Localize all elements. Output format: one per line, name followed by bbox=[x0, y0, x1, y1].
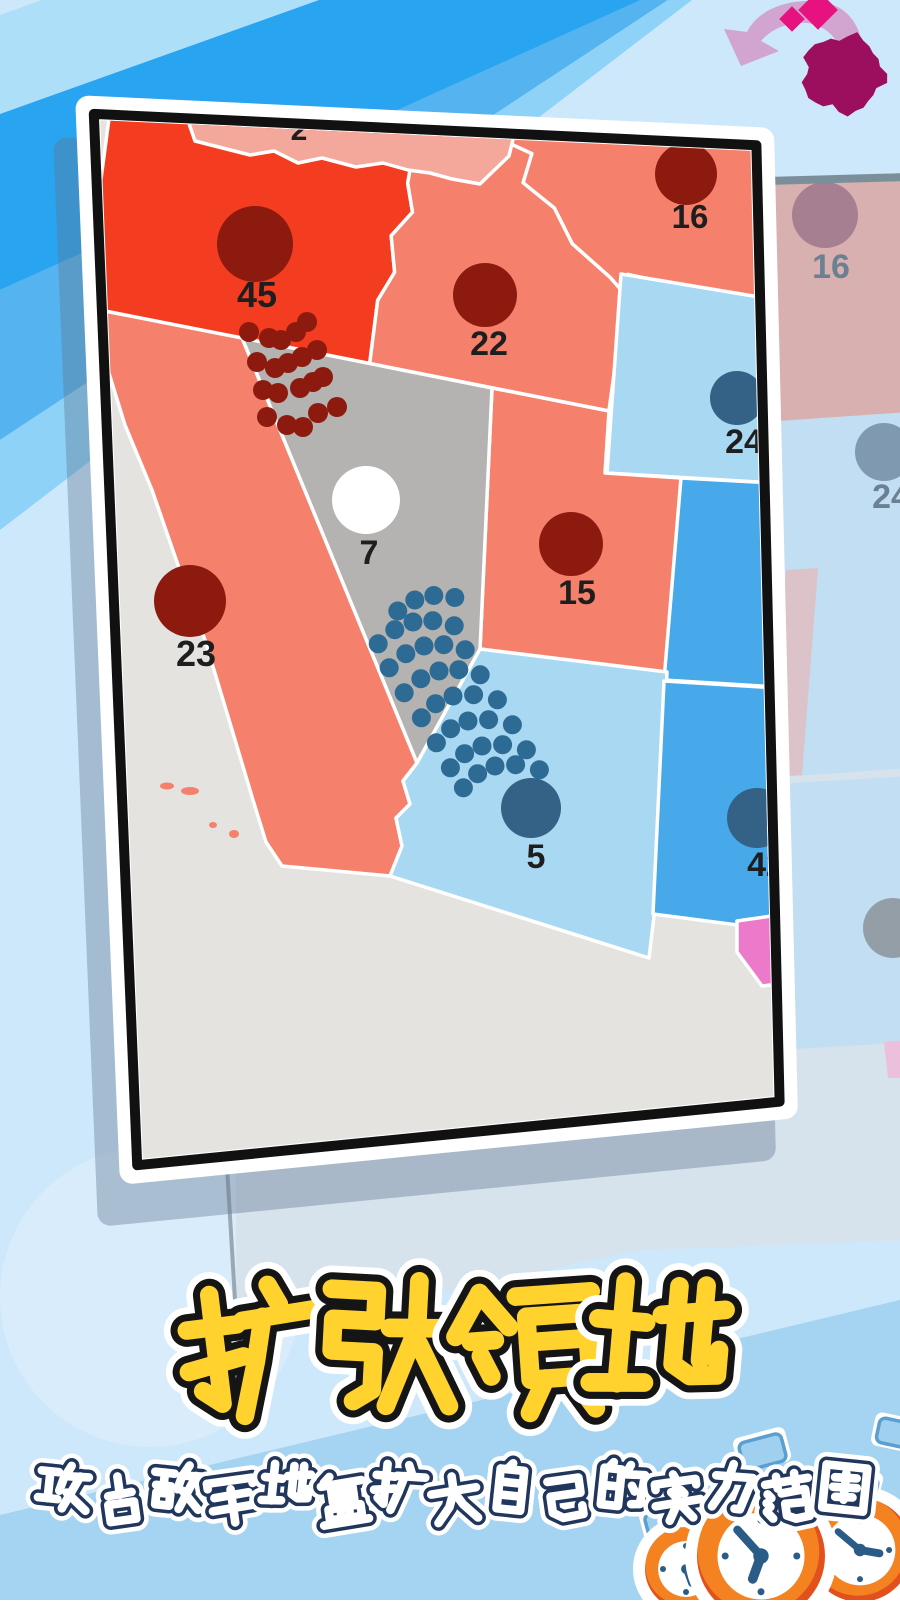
svg-text:24: 24 bbox=[872, 478, 900, 516]
svg-text:45: 45 bbox=[237, 274, 277, 315]
svg-text:15: 15 bbox=[558, 574, 596, 612]
svg-text:7: 7 bbox=[360, 534, 379, 572]
svg-text:16: 16 bbox=[672, 198, 709, 235]
svg-text:16: 16 bbox=[812, 248, 850, 286]
svg-text:5: 5 bbox=[527, 838, 546, 876]
svg-text:22: 22 bbox=[470, 325, 508, 363]
svg-text:23: 23 bbox=[176, 633, 216, 674]
